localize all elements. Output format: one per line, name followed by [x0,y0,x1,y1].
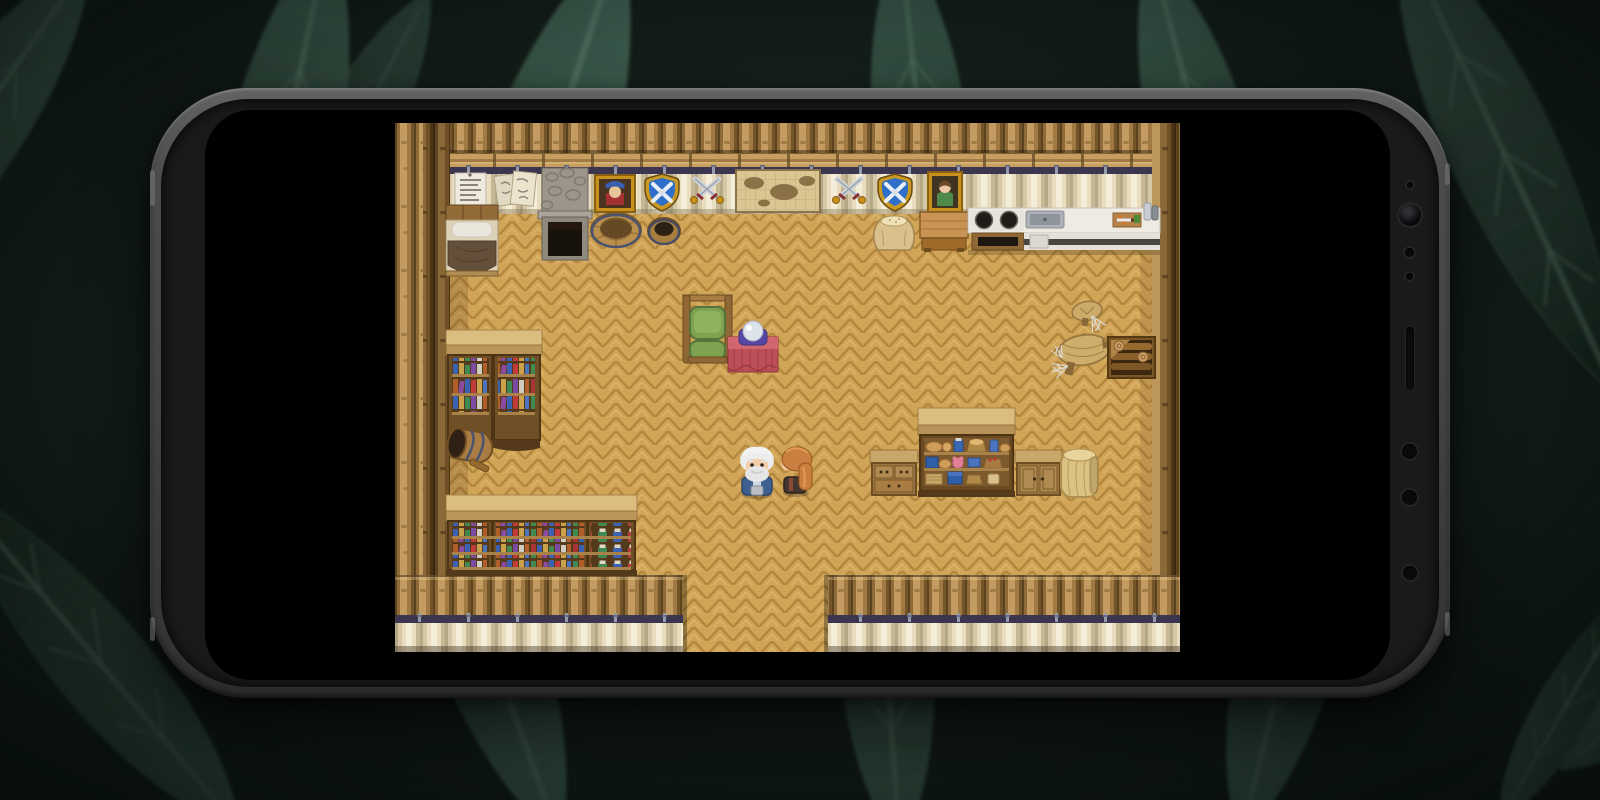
wooden-bucket [648,218,680,244]
potion-jars [591,523,631,536]
portrait-gentleman [595,175,635,212]
front-camera-lens [1399,204,1421,226]
stone-fireplace [538,168,592,260]
kitchen-counter [968,203,1160,255]
smartphone [150,88,1450,698]
screenshot-stage [0,0,1600,800]
stove-burner [976,212,993,229]
notice-paper [455,173,486,210]
game-viewport[interactable] [395,123,1180,652]
crystal-ball [743,321,763,341]
sketch-papers [494,171,537,206]
hay-bale [1061,449,1098,497]
antenna-line [1445,163,1450,185]
portrait-lady [928,172,962,212]
right-wall [1152,123,1180,575]
flour-sack [874,216,915,250]
potion-jars [591,555,631,567]
world-map [736,170,820,212]
sensor-dot [1402,444,1417,459]
door-cabinet [1015,450,1062,495]
firewood-pile [1108,337,1155,378]
drawer-cabinet [870,450,918,495]
phone-screen[interactable] [205,110,1390,680]
sensor-dot [1405,248,1414,257]
sensor-dot [1406,273,1413,280]
antenna-line [1445,612,1450,636]
jar [1152,206,1158,220]
book-rows [452,523,631,570]
left-wall [395,123,450,575]
side-table [920,212,968,252]
door-opening[interactable] [683,575,828,652]
sensor-dot [1402,490,1417,505]
earpiece-speaker [1406,327,1414,390]
wall-shadow [1140,214,1152,575]
pantry-shelf [918,408,1015,497]
bed [446,205,498,276]
game-scene[interactable] [395,123,1180,652]
stove-burner [1001,212,1018,229]
large-bookshelf [446,495,637,576]
sensor-dot [1403,566,1417,580]
towel [1030,235,1048,248]
wash-basin [591,213,641,247]
antenna-line [150,170,155,206]
antenna-line [150,617,155,641]
sensor-dot [1407,182,1413,188]
potion-jars [591,539,631,552]
jar [1144,203,1151,220]
